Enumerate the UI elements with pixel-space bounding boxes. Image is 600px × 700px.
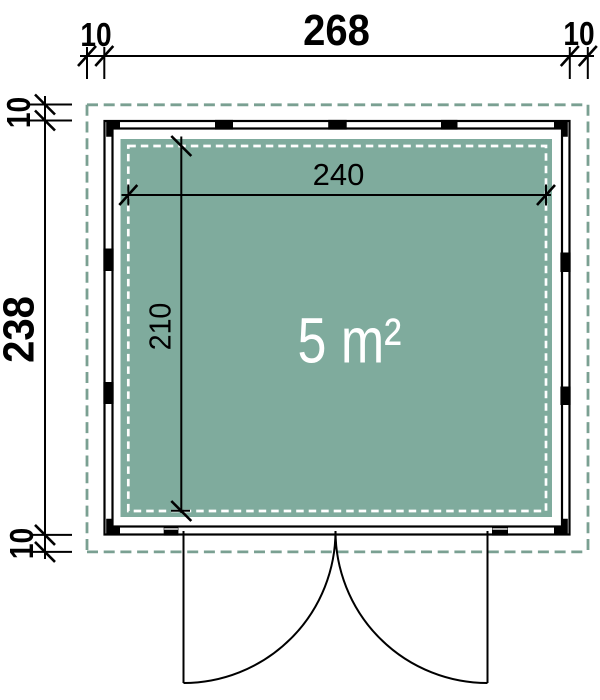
- svg-text:210: 210: [143, 303, 177, 351]
- svg-text:10: 10: [80, 17, 111, 54]
- svg-text:10: 10: [1, 97, 38, 128]
- svg-text:268: 268: [303, 5, 370, 54]
- svg-text:10: 10: [4, 528, 41, 559]
- svg-text:5 m²: 5 m²: [298, 305, 402, 377]
- svg-text:10: 10: [563, 16, 594, 53]
- svg-text:240: 240: [313, 157, 365, 192]
- svg-text:238: 238: [0, 296, 43, 363]
